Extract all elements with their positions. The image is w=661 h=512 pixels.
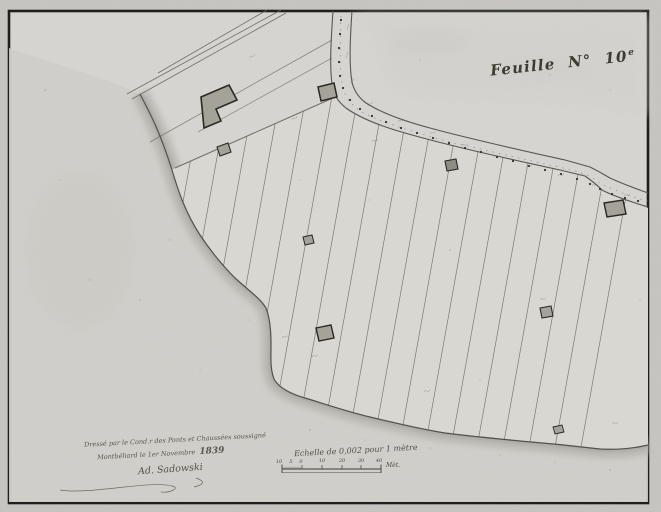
map-drawing	[0, 0, 661, 512]
scale-major-label: 20	[339, 458, 345, 464]
paper-grain	[9, 11, 648, 503]
scale-major-label: 40	[376, 458, 382, 464]
scale-unit-label: Mèt.	[386, 462, 400, 469]
scale-sub-label: 0	[299, 459, 302, 465]
scale-sub-label: 5	[289, 459, 292, 465]
scale-sub-label: 10	[276, 459, 282, 465]
scale-major-label: 30	[358, 458, 364, 464]
scanned-map-sheet: Feuille N° 10e Dressé par le Cond.r des …	[0, 0, 661, 512]
scale-major-label: 10	[319, 458, 325, 464]
